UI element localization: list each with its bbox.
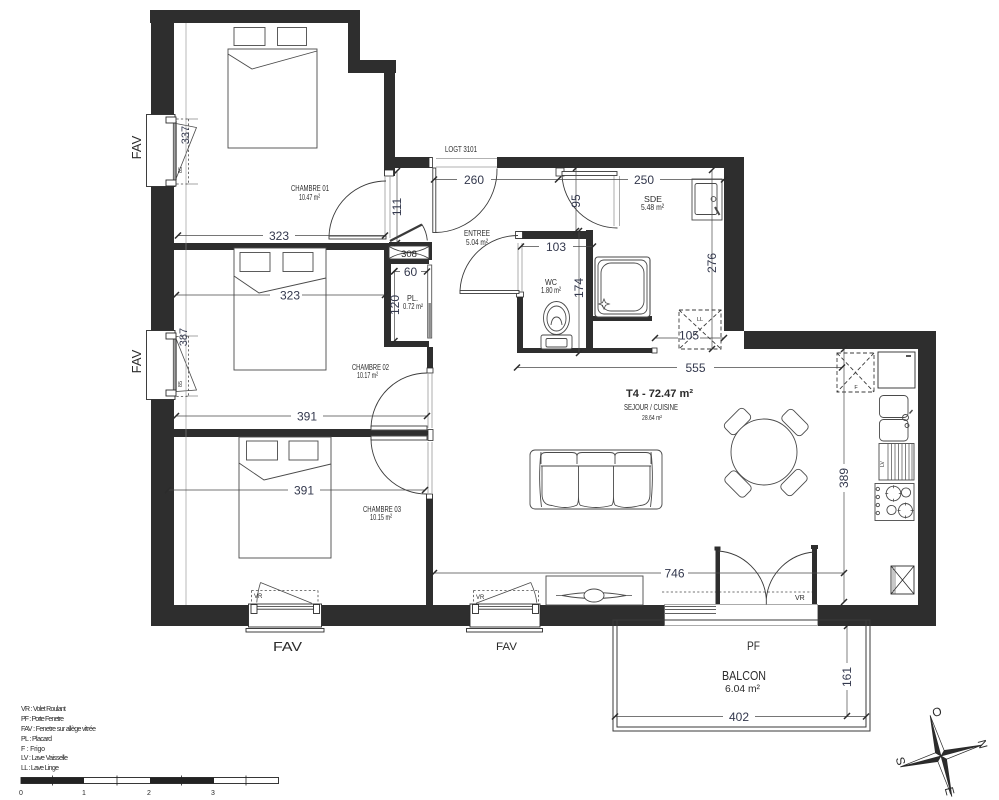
svg-text:LV: LV: [880, 460, 886, 466]
svg-text:SEJOUR / CUISINE: SEJOUR / CUISINE: [624, 403, 678, 412]
svg-text:VR: VR: [476, 595, 485, 601]
svg-text:6.04 m²: 6.04 m²: [725, 684, 761, 695]
svg-text:323: 323: [280, 289, 300, 303]
svg-text:323: 323: [269, 229, 289, 243]
svg-text:3: 3: [211, 790, 215, 797]
svg-text:5.48 m²: 5.48 m²: [641, 202, 664, 212]
svg-text:FAV : Fenetre sur allège vitré: FAV : Fenetre sur allège vitrée: [21, 726, 96, 733]
svg-text:2: 2: [147, 790, 151, 797]
svg-text:28.64 m²: 28.64 m²: [642, 413, 662, 422]
svg-text:105: 105: [679, 329, 699, 343]
svg-text:BALCON: BALCON: [722, 669, 766, 683]
svg-text:85: 85: [178, 167, 184, 173]
svg-text:LL : Lave Linge: LL : Lave Linge: [21, 765, 59, 772]
svg-text:161: 161: [840, 667, 854, 687]
svg-text:120: 120: [388, 295, 402, 315]
svg-text:LL: LL: [697, 317, 703, 323]
svg-text:FAV: FAV: [273, 639, 302, 654]
svg-text:391: 391: [294, 484, 314, 498]
svg-text:FAV: FAV: [129, 135, 144, 159]
svg-text:103: 103: [546, 240, 566, 254]
svg-text:1: 1: [82, 790, 86, 797]
svg-text:FAV: FAV: [496, 641, 518, 653]
svg-text:60: 60: [404, 265, 418, 279]
svg-text:F : Frigo: F : Frigo: [21, 746, 45, 753]
svg-text:337: 337: [180, 126, 192, 144]
svg-text:VR: VR: [795, 595, 805, 602]
svg-text:10.15 m²: 10.15 m²: [370, 512, 392, 522]
svg-text:10.17 m²: 10.17 m²: [357, 370, 378, 380]
svg-text:746: 746: [664, 567, 684, 581]
svg-text:T4 - 72.47 m²: T4 - 72.47 m²: [626, 388, 693, 400]
svg-text:PF: PF: [747, 639, 760, 653]
svg-text:PL : Placard: PL : Placard: [21, 736, 52, 743]
svg-text:FAV: FAV: [129, 349, 144, 373]
svg-text:387: 387: [178, 328, 190, 346]
svg-text:276: 276: [705, 253, 719, 273]
svg-text:402: 402: [729, 710, 749, 724]
svg-text:111: 111: [390, 198, 404, 217]
svg-text:LV : Lave Vaisselle: LV : Lave Vaisselle: [21, 755, 68, 762]
svg-text:555: 555: [685, 361, 705, 375]
svg-text:0.72 m²: 0.72 m²: [403, 302, 423, 311]
svg-text:389: 389: [837, 468, 851, 488]
svg-text:VR: VR: [254, 594, 263, 600]
svg-text:VR : Volet Roulant: VR : Volet Roulant: [21, 706, 66, 713]
svg-text:391: 391: [297, 410, 317, 424]
svg-text:95: 95: [569, 194, 583, 208]
svg-text:5.04 m²: 5.04 m²: [466, 237, 488, 247]
svg-text:85: 85: [178, 381, 184, 387]
svg-text:250: 250: [634, 173, 654, 187]
svg-text:LOGT 3101: LOGT 3101: [445, 144, 477, 154]
svg-text:174: 174: [572, 278, 586, 298]
svg-text:0: 0: [19, 790, 23, 797]
svg-text:260: 260: [464, 173, 484, 187]
svg-text:308: 308: [401, 249, 417, 260]
svg-text:1.80 m²: 1.80 m²: [541, 285, 561, 295]
svg-text:10.47 m²: 10.47 m²: [299, 192, 320, 202]
svg-text:PF : Porte Fenetre: PF : Porte Fenetre: [21, 716, 64, 723]
